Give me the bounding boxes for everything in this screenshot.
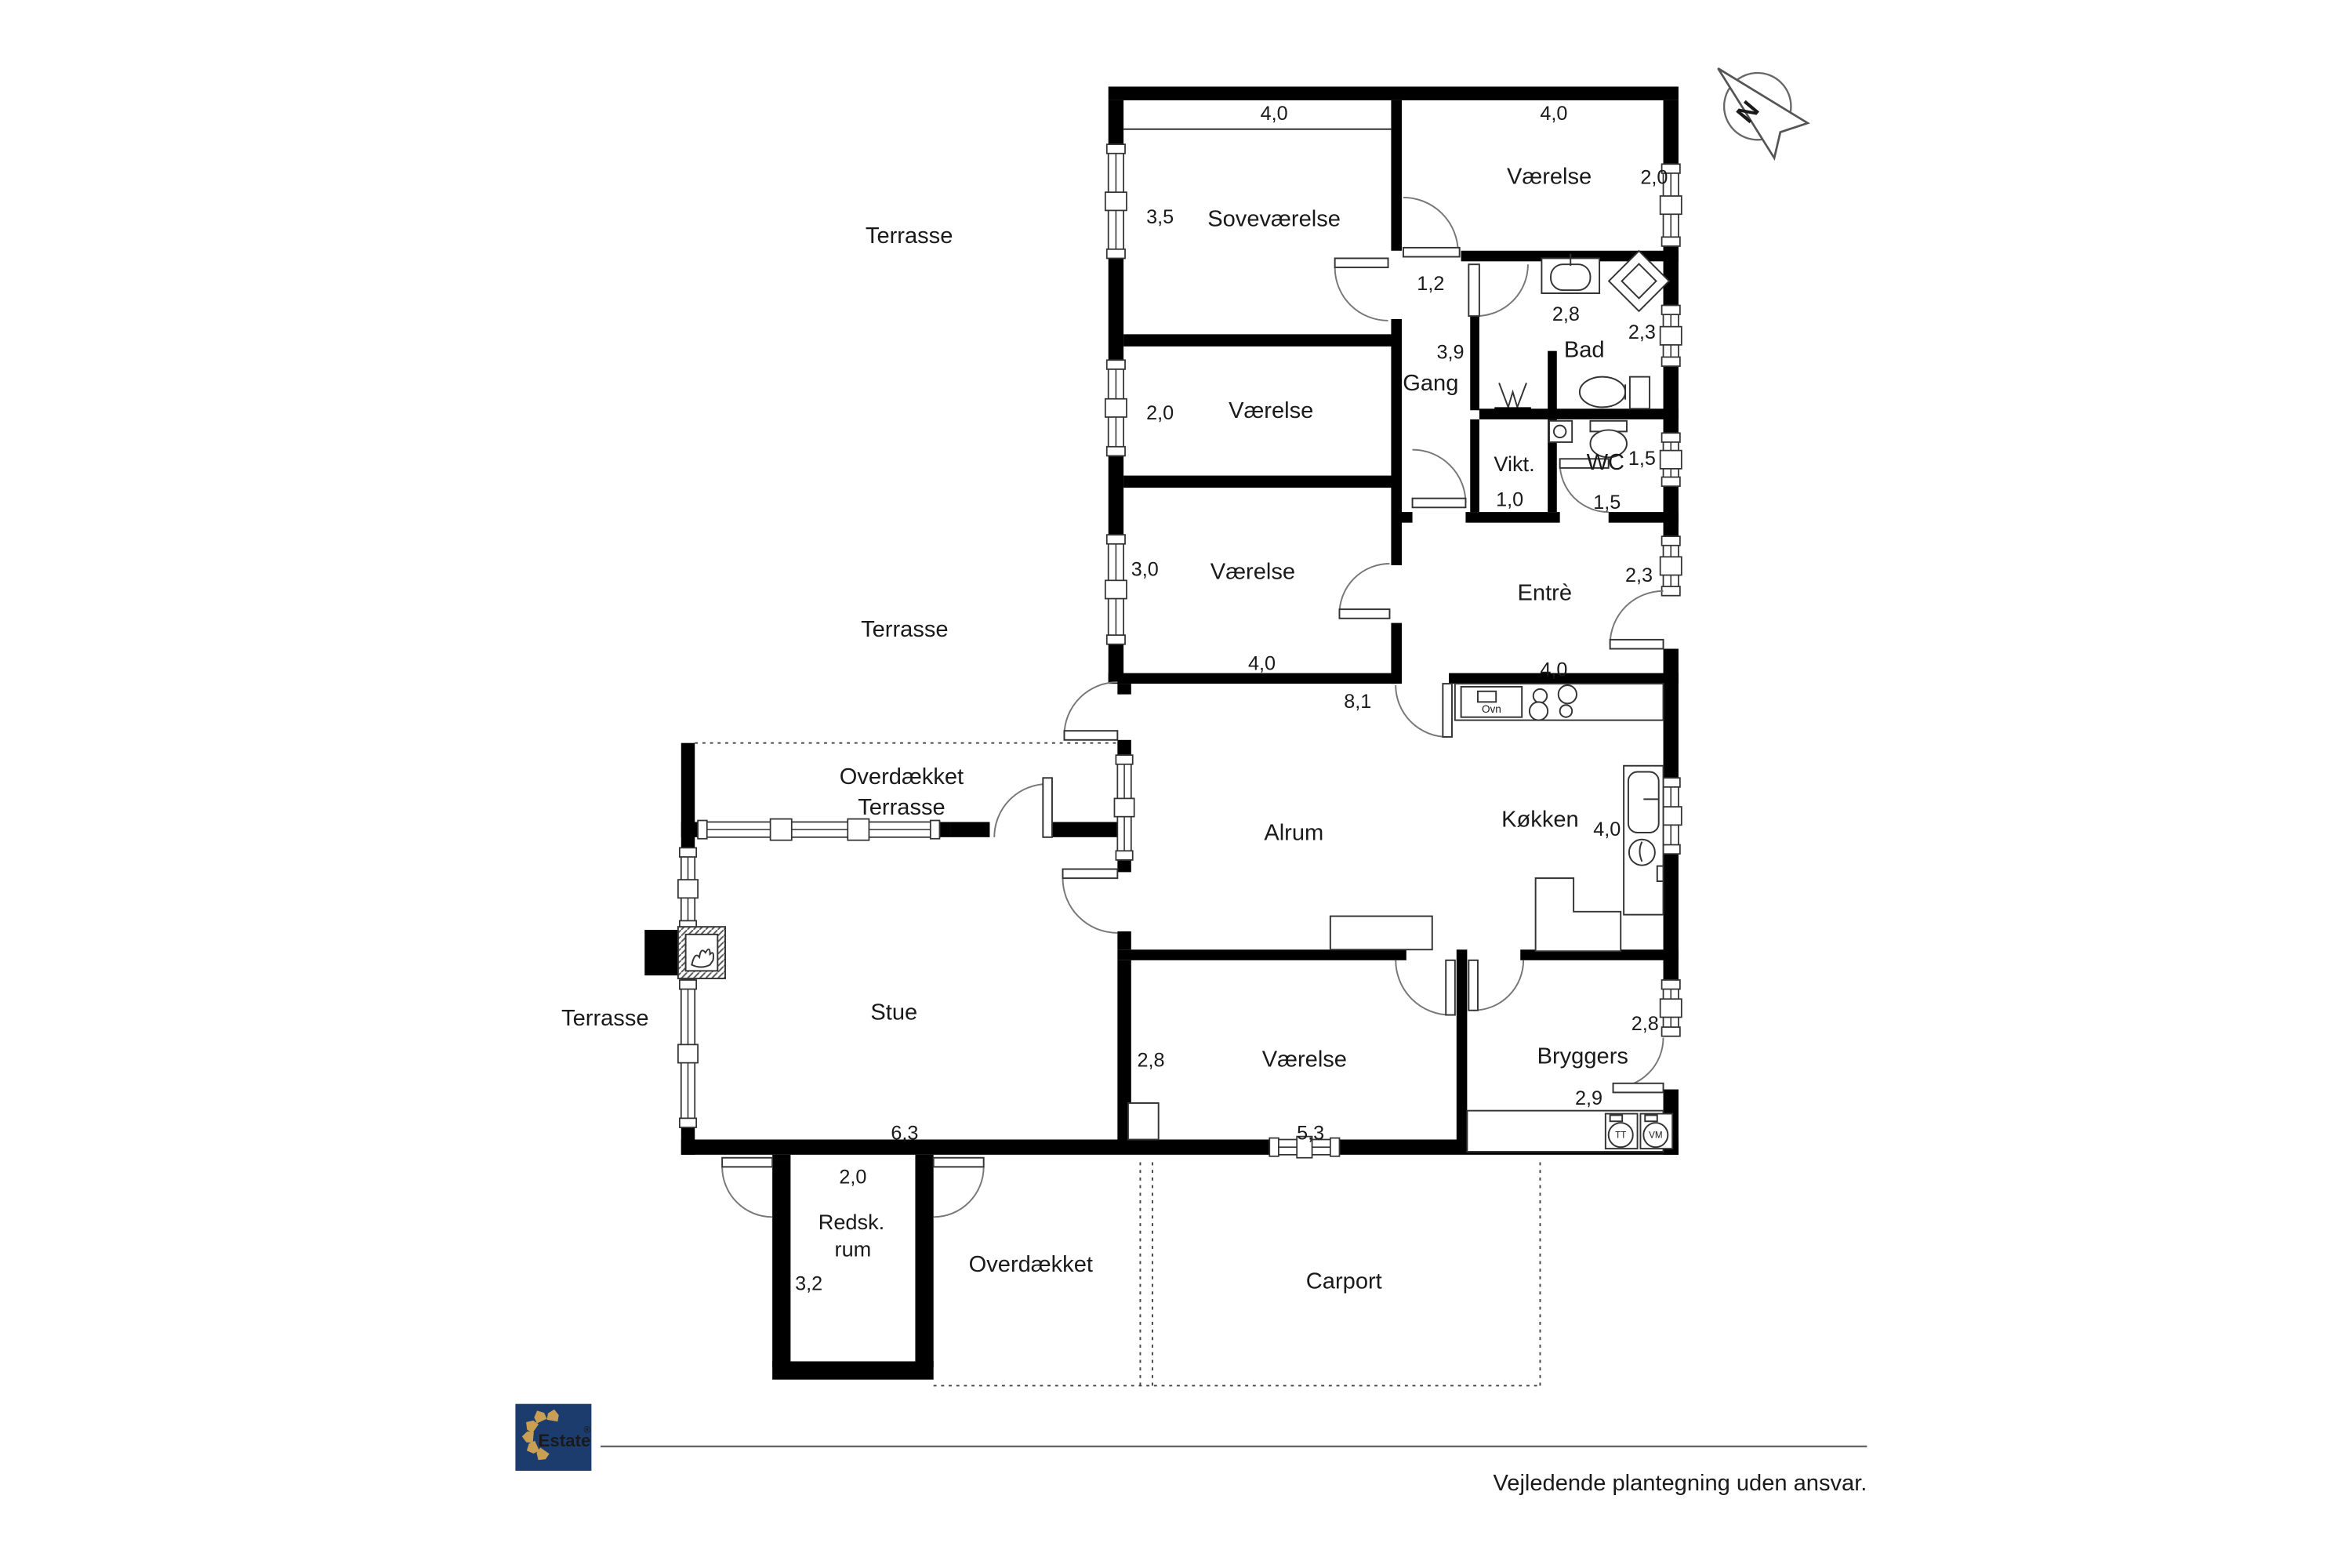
label-dim-wc-right: 1,5 xyxy=(1628,448,1656,470)
label-dim-sovevaerelse-left: 3,5 xyxy=(1146,206,1174,228)
label-dim-alrum-width: 8,1 xyxy=(1344,691,1371,713)
label-dim-bad-right: 2,3 xyxy=(1628,321,1656,343)
label-dim-vaerelse-bund-bottom: 5,3 xyxy=(1297,1122,1324,1144)
brand-name: Estate xyxy=(538,1431,590,1450)
label-room-redsk-line2: rum xyxy=(835,1237,872,1261)
label-dim-bryggers-right: 2,8 xyxy=(1632,1013,1659,1035)
label-room-vaerelse-nord: Værelse xyxy=(1507,165,1592,190)
label-dim-entre-bottom: 4,0 xyxy=(1540,659,1567,681)
label-dim-gang-top: 1,2 xyxy=(1417,273,1444,295)
floor-plan-page: N Estate ® Vejledende plantegning uden a… xyxy=(0,0,2352,1568)
registered-mark: ® xyxy=(584,1425,591,1436)
label-room-gang: Gang xyxy=(1403,371,1458,396)
label-dim-koekken: 4,0 xyxy=(1593,818,1621,840)
kitchen-island xyxy=(1536,878,1621,951)
label-room-vikt: Vikt. xyxy=(1494,452,1534,476)
footer: Vejledende plantegning uden ansvar. xyxy=(601,1446,1867,1496)
walls xyxy=(681,86,1679,1379)
label-dim-sovevaerelse-top: 4,0 xyxy=(1261,103,1288,125)
label-dim-redsk-top: 2,0 xyxy=(839,1167,866,1189)
label-dim-gang-height: 3,9 xyxy=(1437,341,1465,363)
label-overdaekket-terrasse-line1: Overdækket xyxy=(840,764,964,789)
label-room-bad: Bad xyxy=(1564,337,1605,362)
label-room-wc: WC xyxy=(1587,450,1624,475)
label-dim-bad-width: 2,8 xyxy=(1552,303,1580,325)
label-room-alrum: Alrum xyxy=(1264,821,1323,846)
estate-logo: Estate ® xyxy=(515,1404,591,1471)
footer-disclaimer: Vejledende plantegning uden ansvar. xyxy=(1494,1471,1867,1496)
label-dim-wc-bottom: 1,5 xyxy=(1593,492,1621,514)
label-dim-bryggers: 2,9 xyxy=(1575,1087,1602,1109)
table xyxy=(1330,916,1432,950)
label-room-redsk-line1: Redsk. xyxy=(818,1210,884,1234)
label-room-vaerelse-vest: Værelse xyxy=(1229,398,1313,423)
label-appliance-vm: VM xyxy=(1649,1131,1662,1141)
toilet-icon-bad xyxy=(1580,377,1650,409)
label-dim-redsk-left: 3,2 xyxy=(795,1272,822,1294)
wc-sink-icon xyxy=(1549,421,1572,442)
label-terrasse-mid: Terrasse xyxy=(861,617,948,642)
label-area-carport: Carport xyxy=(1306,1269,1382,1294)
label-room-entre: Entrè xyxy=(1518,581,1572,606)
label-dim-vaerelse-vest-left: 2,0 xyxy=(1146,402,1174,424)
label-appliance-ovn: Ovn xyxy=(1482,703,1501,715)
kitchen-sink-icon xyxy=(1624,766,1663,915)
attic-hatch-icon xyxy=(1494,383,1531,413)
label-overdaekket-terrasse-line2: Terrasse xyxy=(858,795,945,820)
label-dim-entre-right: 2,3 xyxy=(1625,564,1653,586)
label-room-koekken: Køkken xyxy=(1501,807,1579,832)
label-room-vaerelse-3: Værelse xyxy=(1210,559,1295,584)
fixtures xyxy=(644,129,1672,1152)
label-dim-vaerelse-nord-right: 2,0 xyxy=(1640,167,1668,189)
windows xyxy=(678,144,1682,1158)
floor-plan-drawing: N Estate ® Vejledende plantegning uden a… xyxy=(0,0,2352,1568)
label-dim-vaerelse-bund-left: 2,8 xyxy=(1137,1049,1164,1071)
label-dim-vaerelse-3-bottom: 4,0 xyxy=(1248,653,1276,675)
label-room-bryggers: Bryggers xyxy=(1537,1044,1628,1069)
closet xyxy=(1128,1103,1159,1140)
compass-icon: N xyxy=(1718,68,1807,158)
label-area-overdaekket: Overdækket xyxy=(969,1252,1093,1277)
label-appliance-tt: TT xyxy=(1615,1131,1626,1141)
laundry-counter xyxy=(1467,1111,1672,1152)
label-terrasse-left: Terrasse xyxy=(561,1006,648,1031)
label-room-vaerelse-bund: Værelse xyxy=(1262,1047,1347,1072)
label-terrasse-top: Terrasse xyxy=(866,223,953,249)
label-room-sovevaerelse: Soveværelse xyxy=(1207,207,1341,232)
label-room-stue: Stue xyxy=(870,1000,917,1025)
fireplace-icon xyxy=(644,927,725,978)
label-dim-stue: 6,3 xyxy=(891,1122,918,1144)
label-dim-vikt: 1,0 xyxy=(1496,488,1523,510)
label-dim-vaerelse-nord-top: 4,0 xyxy=(1540,103,1567,125)
bathroom-sink-icon xyxy=(1541,254,1599,293)
label-dim-vaerelse-3-left: 3,0 xyxy=(1131,559,1159,581)
